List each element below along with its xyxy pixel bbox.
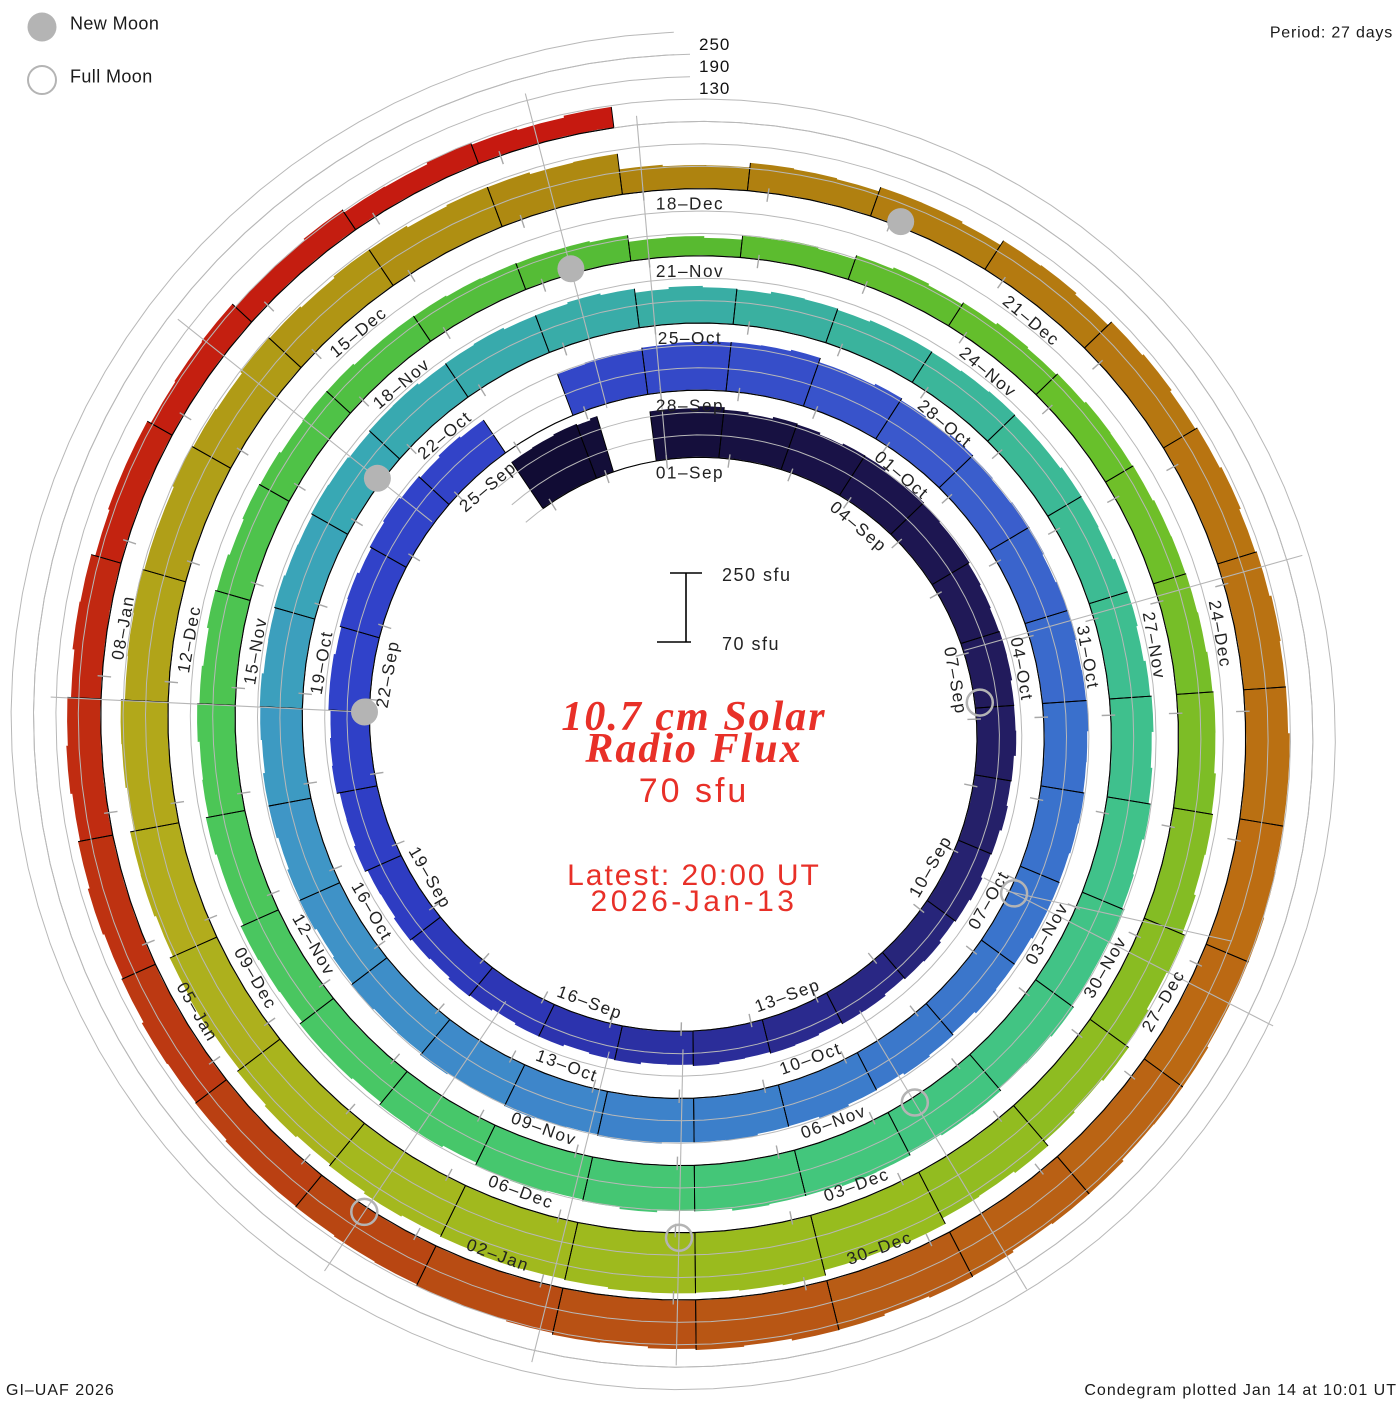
svg-text:Radio Flux: Radio Flux: [584, 726, 802, 772]
svg-text:01–Sep: 01–Sep: [656, 463, 724, 483]
svg-text:Condegram plotted Jan 14 at 10: Condegram plotted Jan 14 at 10:01 UT: [1084, 1382, 1397, 1399]
svg-text:GI–UAF 2026: GI–UAF 2026: [6, 1382, 115, 1399]
svg-text:250 sfu: 250 sfu: [722, 565, 792, 585]
svg-text:250: 250: [699, 35, 730, 54]
svg-text:28–Sep: 28–Sep: [656, 395, 724, 415]
svg-text:2026-Jan-13: 2026-Jan-13: [591, 885, 798, 918]
svg-text:25–Oct: 25–Oct: [658, 328, 722, 348]
svg-text:190: 190: [699, 57, 730, 76]
svg-text:21–Nov: 21–Nov: [656, 261, 724, 281]
svg-text:New Moon: New Moon: [70, 14, 159, 34]
svg-text:70 sfu: 70 sfu: [639, 772, 750, 810]
svg-text:70 sfu: 70 sfu: [722, 634, 780, 654]
svg-text:Period: 27 days: Period: 27 days: [1270, 25, 1393, 42]
svg-text:130: 130: [699, 79, 730, 98]
svg-text:18–Dec: 18–Dec: [656, 194, 724, 214]
svg-text:Full Moon: Full Moon: [70, 67, 153, 87]
